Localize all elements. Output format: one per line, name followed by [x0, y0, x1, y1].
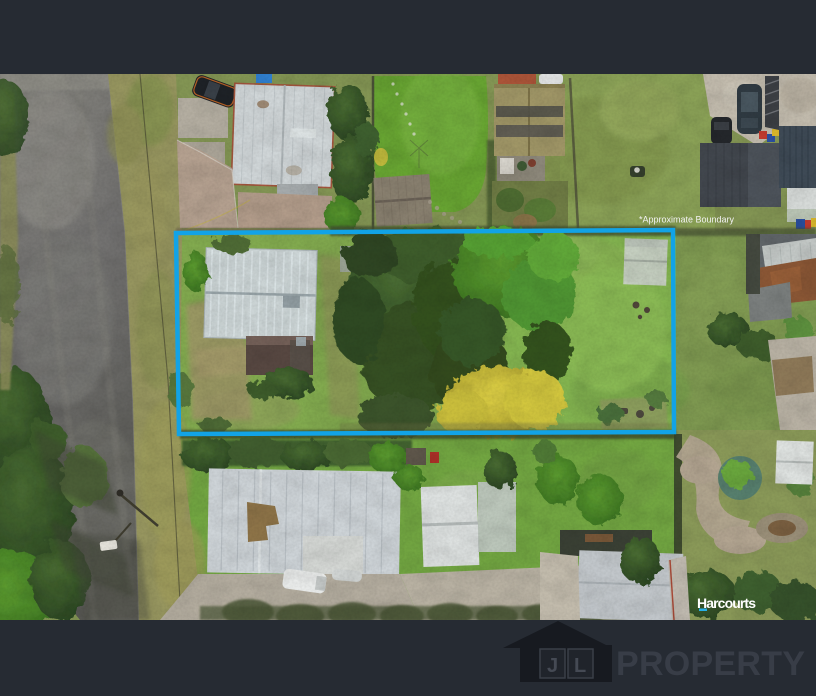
svg-text:*Approximate Boundary: *Approximate Boundary — [639, 215, 735, 225]
svg-text:L: L — [574, 655, 586, 677]
svg-text:J: J — [547, 655, 558, 677]
svg-text:PROPERTY: PROPERTY — [616, 645, 805, 683]
